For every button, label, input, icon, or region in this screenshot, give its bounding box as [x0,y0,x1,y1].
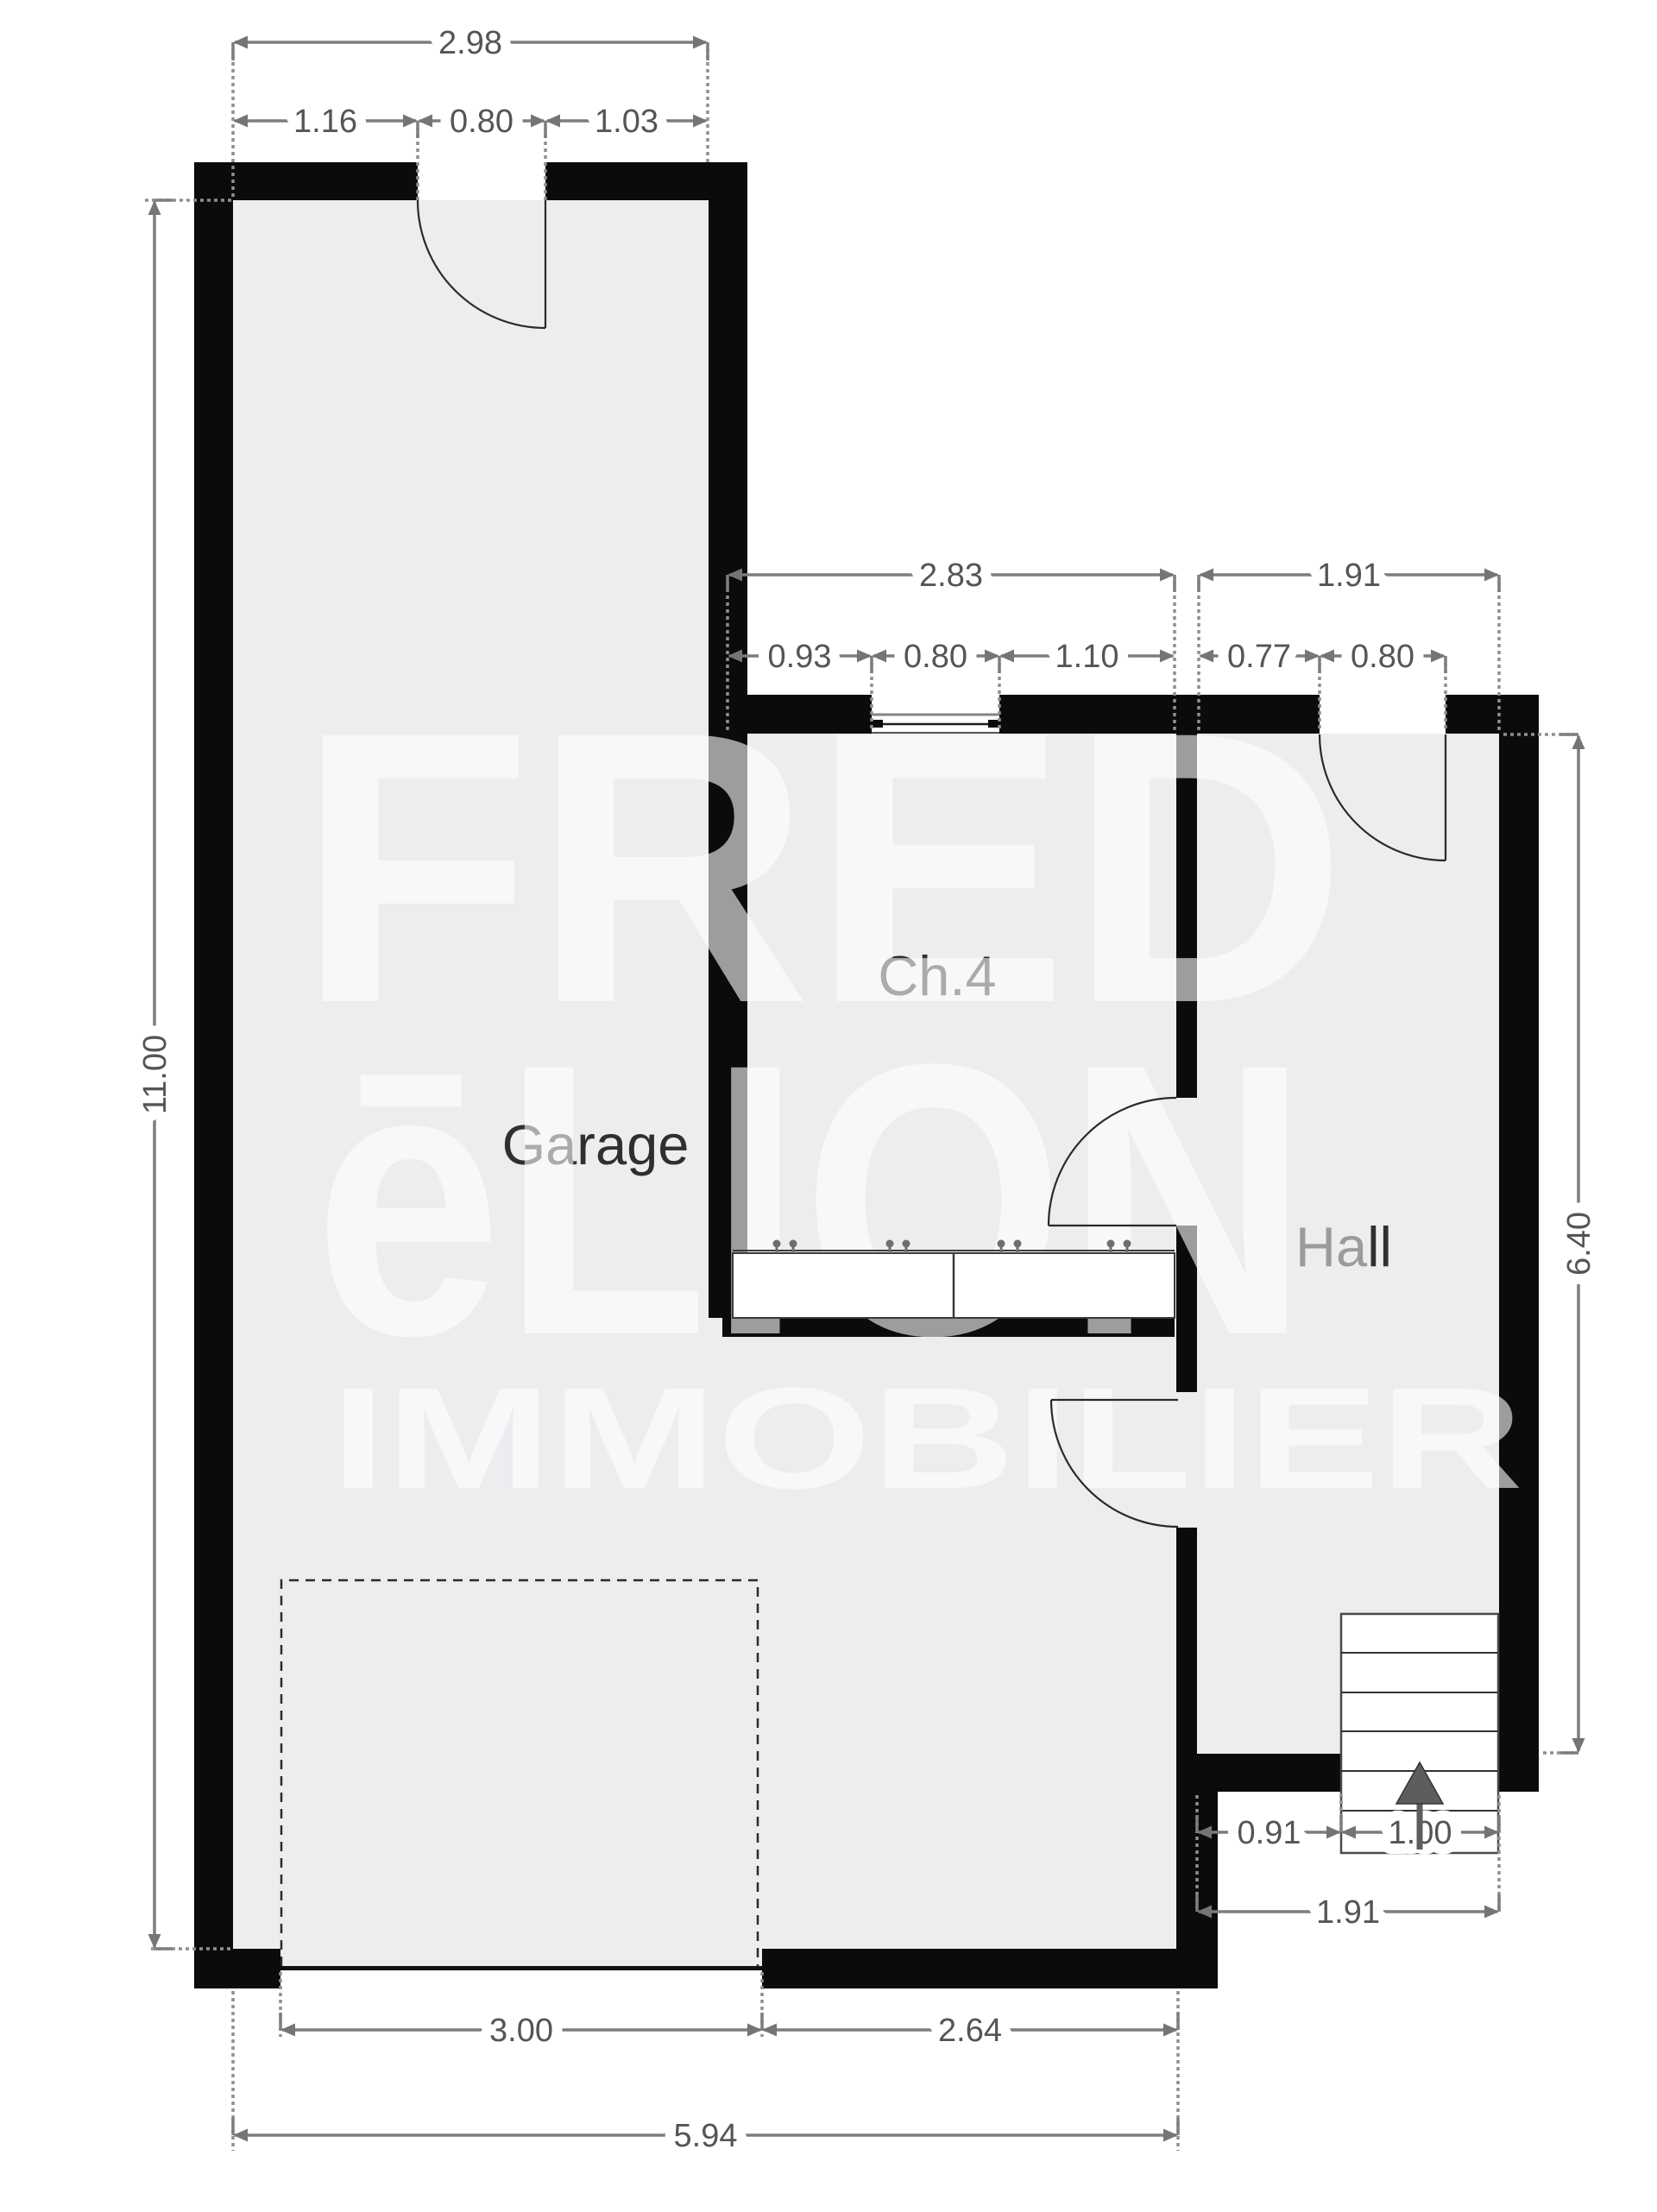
svg-text:6.40: 6.40 [1561,1212,1597,1276]
svg-text:1.03: 1.03 [595,104,658,140]
svg-text:1.16: 1.16 [293,104,357,140]
svg-text:0.80: 0.80 [450,104,513,140]
svg-text:0.80: 0.80 [1351,639,1414,675]
svg-text:2.64: 2.64 [938,2013,1002,2049]
svg-text:2.98: 2.98 [438,25,502,61]
svg-text:3.00: 3.00 [489,2013,553,2049]
svg-text:0.77: 0.77 [1227,639,1291,675]
svg-text:0.80: 0.80 [904,639,967,675]
svg-text:11.00: 11.00 [137,1035,173,1114]
svg-text:ēLION: ēLION [314,983,1309,1415]
svg-text:Hall: Hall [1295,1215,1392,1278]
svg-text:5.94: 5.94 [674,2118,738,2154]
svg-text:0.93: 0.93 [768,639,832,675]
svg-text:1.10: 1.10 [1055,639,1119,675]
svg-text:1.91: 1.91 [1317,558,1381,594]
svg-text:0.91: 0.91 [1238,1815,1301,1851]
svg-text:1.91: 1.91 [1316,1894,1380,1931]
svg-text:2.83: 2.83 [919,558,983,594]
svg-text:IMMOBILIER: IMMOBILIER [331,1358,1523,1519]
